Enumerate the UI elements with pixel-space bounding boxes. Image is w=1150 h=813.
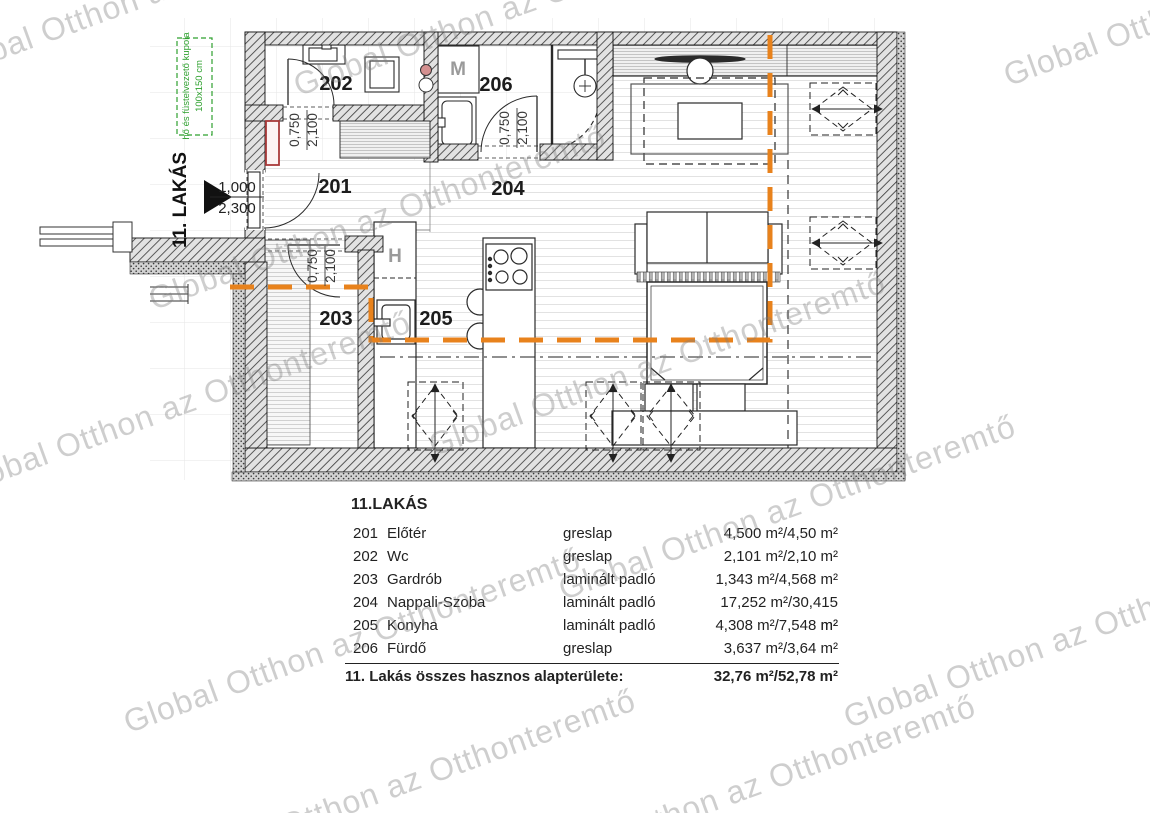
- svg-text:2,100: 2,100: [515, 111, 530, 145]
- floor-plan-drawing: hő és füstelvezető kupola 100x150 cm 11.…: [0, 0, 1150, 813]
- svg-text:0,750: 0,750: [497, 111, 512, 145]
- room-name: Wc: [387, 545, 563, 568]
- room-number: 202: [345, 545, 387, 568]
- room-number: 206: [345, 637, 387, 660]
- svg-text:0,750: 0,750: [287, 113, 302, 147]
- room-label-203: 203: [319, 308, 352, 330]
- kitchen-island: [483, 238, 535, 448]
- svg-text:0,750: 0,750: [305, 249, 320, 283]
- room-name: Gardrób: [387, 568, 563, 591]
- pipe-stack-icon: [421, 65, 432, 76]
- apartment-side-label: 11. LAKÁS: [169, 152, 191, 248]
- room-name: Fürdő: [387, 637, 563, 660]
- low-cabinet: [612, 411, 797, 445]
- insulation-right: [897, 32, 905, 480]
- total-area: 32,76 m²/52,78 m²: [690, 664, 850, 690]
- bed: [647, 282, 767, 384]
- table-row: 204 Nappali-Szoba laminált padló 17,252 …: [345, 591, 850, 614]
- svg-text:2,100: 2,100: [323, 249, 338, 283]
- wardrobe-shelves: [265, 240, 310, 445]
- room-area: 4,500 m²/4,50 m²: [711, 522, 850, 545]
- total-label: 11. Lakás összes hasznos alapterülete:: [345, 664, 690, 690]
- room-floor: greslap: [563, 545, 711, 568]
- wardrobe-strip: [613, 45, 878, 76]
- wall-left-upper: [245, 32, 265, 172]
- wall-under-206: [438, 144, 478, 160]
- pipe-stack-icon: [419, 78, 433, 92]
- wall-203-right: [358, 250, 374, 448]
- room-area: 1,343 m²/4,568 m²: [711, 568, 850, 591]
- wall-206-right: [597, 32, 613, 160]
- room-label-205: 205: [419, 308, 452, 330]
- room-area: 3,637 m²/3,64 m²: [711, 637, 850, 660]
- room-number: 201: [345, 522, 387, 545]
- kitchen-sink: [374, 300, 415, 344]
- svg-text:2,300: 2,300: [218, 200, 256, 217]
- wall-right: [877, 32, 897, 452]
- room-floor: greslap: [563, 522, 711, 545]
- wall-bottom: [245, 448, 897, 472]
- table-row: 205 Konyha laminált padló 4,308 m²/7,548…: [345, 614, 850, 637]
- room-name: Előtér: [387, 522, 563, 545]
- room-label-201: 201: [318, 176, 351, 198]
- room-label-206: 206: [479, 74, 512, 96]
- svg-text:2,100: 2,100: [305, 113, 320, 147]
- floor-plan-page: hő és füstelvezető kupola 100x150 cm 11.…: [0, 0, 1150, 813]
- room-number: 205: [345, 614, 387, 637]
- insulation-bottom: [232, 472, 905, 481]
- room-floor: laminált padló: [563, 568, 711, 591]
- shaft-marker: [266, 121, 279, 165]
- room-floor: greslap: [563, 637, 711, 660]
- room-area-table: 11.LAKÁS 201 Előtér greslap 4,500 m²/4,5…: [345, 496, 850, 690]
- vent-dome-text: hő és füstelvezető kupola: [181, 32, 192, 140]
- wall-under-202: [245, 105, 283, 121]
- wall-step: [130, 238, 265, 262]
- table-title: 11.LAKÁS: [351, 496, 850, 514]
- bed-bench: [697, 384, 745, 411]
- room-name: Konyha: [387, 614, 563, 637]
- table-total-row: 11. Lakás összes hasznos alapterülete: 3…: [345, 664, 850, 690]
- fridge-label: H: [388, 246, 402, 267]
- svg-text:1,000: 1,000: [218, 179, 256, 196]
- room-floor: laminált padló: [563, 614, 711, 637]
- washing-machine-label: M: [450, 59, 466, 80]
- room-label-202: 202: [319, 73, 352, 95]
- coffee-table: [678, 103, 742, 139]
- room-number: 203: [345, 568, 387, 591]
- room-area: 4,308 m²/7,548 m²: [711, 614, 850, 637]
- room-label-204: 204: [491, 178, 525, 200]
- wall-top: [245, 32, 895, 45]
- table-row: 201 Előtér greslap 4,500 m²/4,50 m²: [345, 522, 850, 545]
- table-row: 202 Wc greslap 2,101 m²/2,10 m²: [345, 545, 850, 568]
- vent-dome-text: 100x150 cm: [194, 60, 205, 112]
- wall-left-lower: [245, 262, 267, 448]
- room-area: 2,101 m²/2,10 m²: [711, 545, 850, 568]
- table-row: 203 Gardrób laminált padló 1,343 m²/4,56…: [345, 568, 850, 591]
- table-row: 206 Fürdő greslap 3,637 m²/3,64 m²: [345, 637, 850, 660]
- hall-cabinet: [340, 121, 430, 158]
